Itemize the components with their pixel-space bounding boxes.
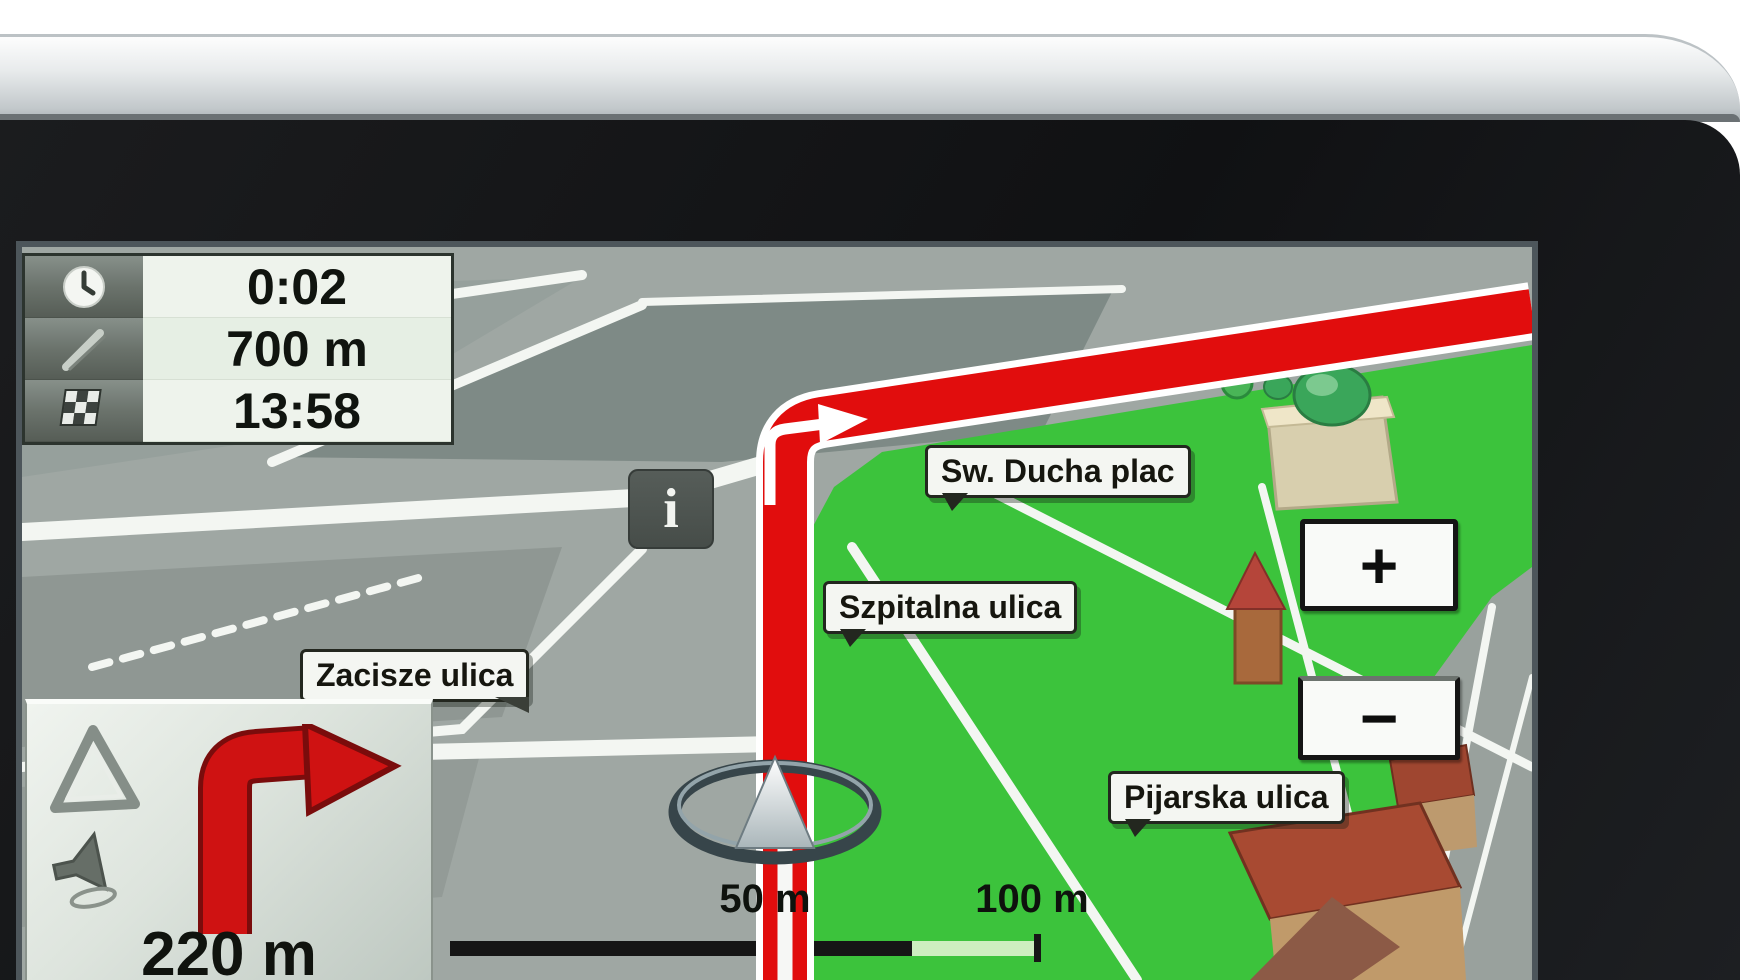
remaining-time-value: 0:02 <box>143 256 451 318</box>
street-label-zacisze-ulica: Zacisze ulica <box>300 649 529 702</box>
scale-label-100m: 100 m <box>952 877 1112 922</box>
navigation-screen: 0:02 700 m 13:58 <box>16 241 1538 980</box>
speaker-icon[interactable] <box>43 822 135 914</box>
zoom-in-button[interactable]: + <box>1300 519 1458 611</box>
scale-label-50m: 50 m <box>695 877 835 922</box>
trip-info-panel[interactable]: 0:02 700 m 13:58 <box>22 253 454 445</box>
street-label-szpitalna-ulica: Szpitalna ulica <box>823 581 1077 634</box>
maneuver-distance: 220 m <box>27 919 431 980</box>
route-distance-icon <box>25 318 143 380</box>
turn-right-arrow-icon <box>145 724 405 934</box>
warning-triangle-icon[interactable] <box>43 722 147 816</box>
maneuver-panel[interactable]: 220 m <box>25 699 433 980</box>
gps-navigator-device: 0:02 700 m 13:58 <box>0 0 1740 980</box>
zoom-out-button[interactable]: − <box>1298 676 1460 760</box>
street-label-pijarska-ulica: Pijarska ulica <box>1108 771 1345 824</box>
street-label-sw-ducha-plac: Sw. Ducha plac <box>925 445 1191 498</box>
info-button[interactable]: i <box>628 469 714 549</box>
clock-icon <box>25 256 143 318</box>
device-top-edge <box>0 34 1740 121</box>
finish-flag-icon <box>25 380 143 442</box>
remaining-distance-value: 700 m <box>143 318 451 380</box>
arrival-time-value: 13:58 <box>143 380 451 442</box>
